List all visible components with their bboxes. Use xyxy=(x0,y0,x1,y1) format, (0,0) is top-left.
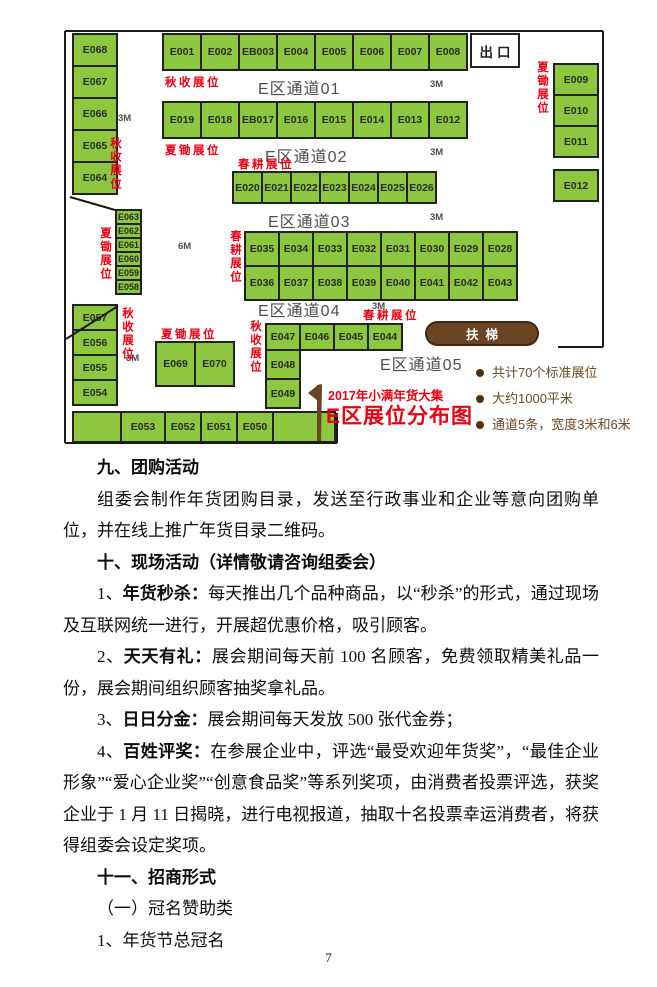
booth-E048: E048 xyxy=(265,349,301,380)
booth-E038: E038 xyxy=(312,265,348,301)
booth-E049: E049 xyxy=(265,378,301,409)
seasonal-booth-label: 秋收展位 xyxy=(108,137,124,203)
item-number: 3、 xyxy=(97,710,123,729)
booth-E016: E016 xyxy=(276,101,316,139)
aisle-label: E区通道04 xyxy=(258,297,340,321)
booth-E054: E054 xyxy=(72,379,118,406)
width-label: 3M xyxy=(118,113,131,124)
plan-note-text: 通道5条，宽度3米和6米 xyxy=(492,417,631,432)
seasonal-booth-label: 夏锄展位 xyxy=(535,61,551,127)
seasonal-booth-label: 夏锄展位 xyxy=(165,142,221,158)
booth-E029: E029 xyxy=(448,231,484,267)
booth-E030: E030 xyxy=(414,231,450,267)
booth-empty xyxy=(72,411,122,443)
booth-E026: E026 xyxy=(406,171,437,204)
plan-title-large: E区展位分布图 xyxy=(326,400,473,430)
booth-E009: E009 xyxy=(553,63,599,96)
seasonal-booth-label: 秋收展位 xyxy=(165,74,221,90)
booth-E006: E006 xyxy=(352,33,392,71)
bullet-icon xyxy=(476,421,484,429)
seasonal-booth-label: 春耕展位 xyxy=(228,230,244,296)
booth-E055: E055 xyxy=(72,354,118,381)
booth-E002: E002 xyxy=(200,33,240,71)
booth-E035: E035 xyxy=(244,231,280,267)
booth-E057: E057 xyxy=(72,304,118,331)
booth-E025: E025 xyxy=(377,171,408,204)
plan-note: 共计70个标准展位 xyxy=(476,365,631,380)
booth-E005: E005 xyxy=(314,33,354,71)
booth-E066: E066 xyxy=(72,97,118,131)
booth-E036: E036 xyxy=(244,265,280,301)
activity-item-3: 3、日日分金：展会期间每天发放 500 张代金券； xyxy=(63,704,599,736)
booth-E034: E034 xyxy=(278,231,314,267)
booth-E067: E067 xyxy=(72,65,118,99)
document-page: 出口 扶梯 2017年小满年货大集 E区展位分布图 共计70个标准展位 大约10… xyxy=(0,0,657,987)
item-number: 2、 xyxy=(97,647,124,666)
plan-notes: 共计70个标准展位 大约1000平米 通道5条，宽度3米和6米 xyxy=(476,365,631,443)
booth-E037: E037 xyxy=(278,265,314,301)
plan-note-text: 大约1000平米 xyxy=(492,391,573,406)
section-11-line-1: （一）冠名赞助类 xyxy=(63,893,599,925)
booth-E050: E050 xyxy=(236,411,274,443)
section-11-heading: 十一、招商形式 xyxy=(63,862,599,894)
item-label: 天天有礼： xyxy=(124,647,212,666)
aisle-label: E区通道05 xyxy=(380,351,462,375)
booth-E044: E044 xyxy=(367,323,403,351)
booth-E012: E012 xyxy=(553,169,599,202)
booth-E004: E004 xyxy=(276,33,316,71)
item-label: 日日分金： xyxy=(123,710,208,729)
booth-E001: E001 xyxy=(162,33,202,71)
booth-E020: E020 xyxy=(232,171,263,204)
aisle-width-label: 3M xyxy=(430,147,443,158)
booth-E069: E069 xyxy=(155,341,196,387)
width-label: 6M xyxy=(178,241,191,252)
section-10-heading: 十、现场活动（详情敬请咨询组委会） xyxy=(63,547,599,579)
seasonal-booth-label: 秋收展位 xyxy=(120,307,136,373)
booth-E011: E011 xyxy=(553,125,599,158)
booth-E028: E028 xyxy=(482,231,518,267)
aisle-label: E区通道01 xyxy=(258,75,340,99)
aisle-width-label: 3M xyxy=(430,212,443,223)
booth-E007: E007 xyxy=(390,33,430,71)
bullet-icon xyxy=(476,369,484,377)
activity-item-1: 1、年货秒杀：每天推出几个品种商品，以“秒杀”的形式，通过现场及互联网统一进行，… xyxy=(63,578,599,641)
item-text: 展会期间每天发放 500 张代金券； xyxy=(208,710,463,729)
item-number: 4、 xyxy=(97,742,123,761)
booth-EB017: EB017 xyxy=(238,101,278,139)
plan-note-text: 共计70个标准展位 xyxy=(492,365,597,380)
booth-E012: E012 xyxy=(428,101,468,139)
seasonal-booth-label: 春耕展位 xyxy=(363,307,419,323)
section-9-para: 组委会制作年货团购目录，发送至行政事业和企业等意向团购单位，并在线上推广年货目录… xyxy=(63,484,599,547)
booth-E015: E015 xyxy=(314,101,354,139)
bullet-icon xyxy=(476,395,484,403)
aisle-label: E区通道03 xyxy=(268,208,350,232)
activity-item-2: 2、天天有礼：展会期间每天前 100 名顾客，免费领取精美礼品一份，展会期间组织… xyxy=(63,641,599,704)
booth-E018: E018 xyxy=(200,101,240,139)
booth-E043: E043 xyxy=(482,265,518,301)
plan-note: 大约1000平米 xyxy=(476,391,631,406)
booth-E056: E056 xyxy=(72,329,118,356)
booth-E024: E024 xyxy=(348,171,379,204)
booth-E045: E045 xyxy=(333,323,369,351)
booth-E021: E021 xyxy=(261,171,292,204)
exit-box: 出口 xyxy=(470,33,520,68)
document-body: 九、团购活动 组委会制作年货团购目录，发送至行政事业和企业等意向团购单位，并在线… xyxy=(63,452,599,956)
seasonal-booth-label: 夏锄展位 xyxy=(161,326,217,342)
booth-E070: E070 xyxy=(194,341,235,387)
aisle-width-label: 3M xyxy=(430,79,443,90)
booth-E053: E053 xyxy=(120,411,166,443)
plan-note: 通道5条，宽度3米和6米 xyxy=(476,417,631,432)
floorplan-diagram: 出口 扶梯 2017年小满年货大集 E区展位分布图 共计70个标准展位 大约10… xyxy=(58,25,657,455)
seasonal-booth-label: 春耕展位 xyxy=(238,156,294,172)
booth-E023: E023 xyxy=(319,171,350,204)
escalator-box: 扶梯 xyxy=(425,321,539,346)
seasonal-booth-label: 秋收展位 xyxy=(248,320,264,386)
booth-E051: E051 xyxy=(200,411,238,443)
booth-E031: E031 xyxy=(380,231,416,267)
booth-E014: E014 xyxy=(352,101,392,139)
booth-EB003: EB003 xyxy=(238,33,278,71)
booth-E019: E019 xyxy=(162,101,202,139)
booth-E041: E041 xyxy=(414,265,450,301)
booth-E068: E068 xyxy=(72,33,118,67)
booth-E042: E042 xyxy=(448,265,484,301)
seasonal-booth-label: 夏锄展位 xyxy=(98,227,114,293)
booth-E039: E039 xyxy=(346,265,382,301)
booth-E040: E040 xyxy=(380,265,416,301)
page-number: 7 xyxy=(0,950,657,966)
booth-E008: E008 xyxy=(428,33,468,71)
booth-E013: E013 xyxy=(390,101,430,139)
section-9-heading: 九、团购活动 xyxy=(63,452,599,484)
item-label: 百姓评奖： xyxy=(123,742,210,761)
item-label: 年货秒杀： xyxy=(123,584,208,603)
item-number: 1、 xyxy=(97,584,123,603)
booth-E047: E047 xyxy=(265,323,301,351)
booth-E022: E022 xyxy=(290,171,321,204)
booth-E046: E046 xyxy=(299,323,335,351)
flag-icon xyxy=(308,384,324,442)
booth-E052: E052 xyxy=(164,411,202,443)
booth-E058: E058 xyxy=(115,279,142,295)
booth-E032: E032 xyxy=(346,231,382,267)
booth-E033: E033 xyxy=(312,231,348,267)
activity-item-4: 4、百姓评奖：在参展企业中，评选“最受欢迎年货奖”，“最佳企业形象”“爱心企业奖… xyxy=(63,736,599,862)
booth-E010: E010 xyxy=(553,94,599,127)
